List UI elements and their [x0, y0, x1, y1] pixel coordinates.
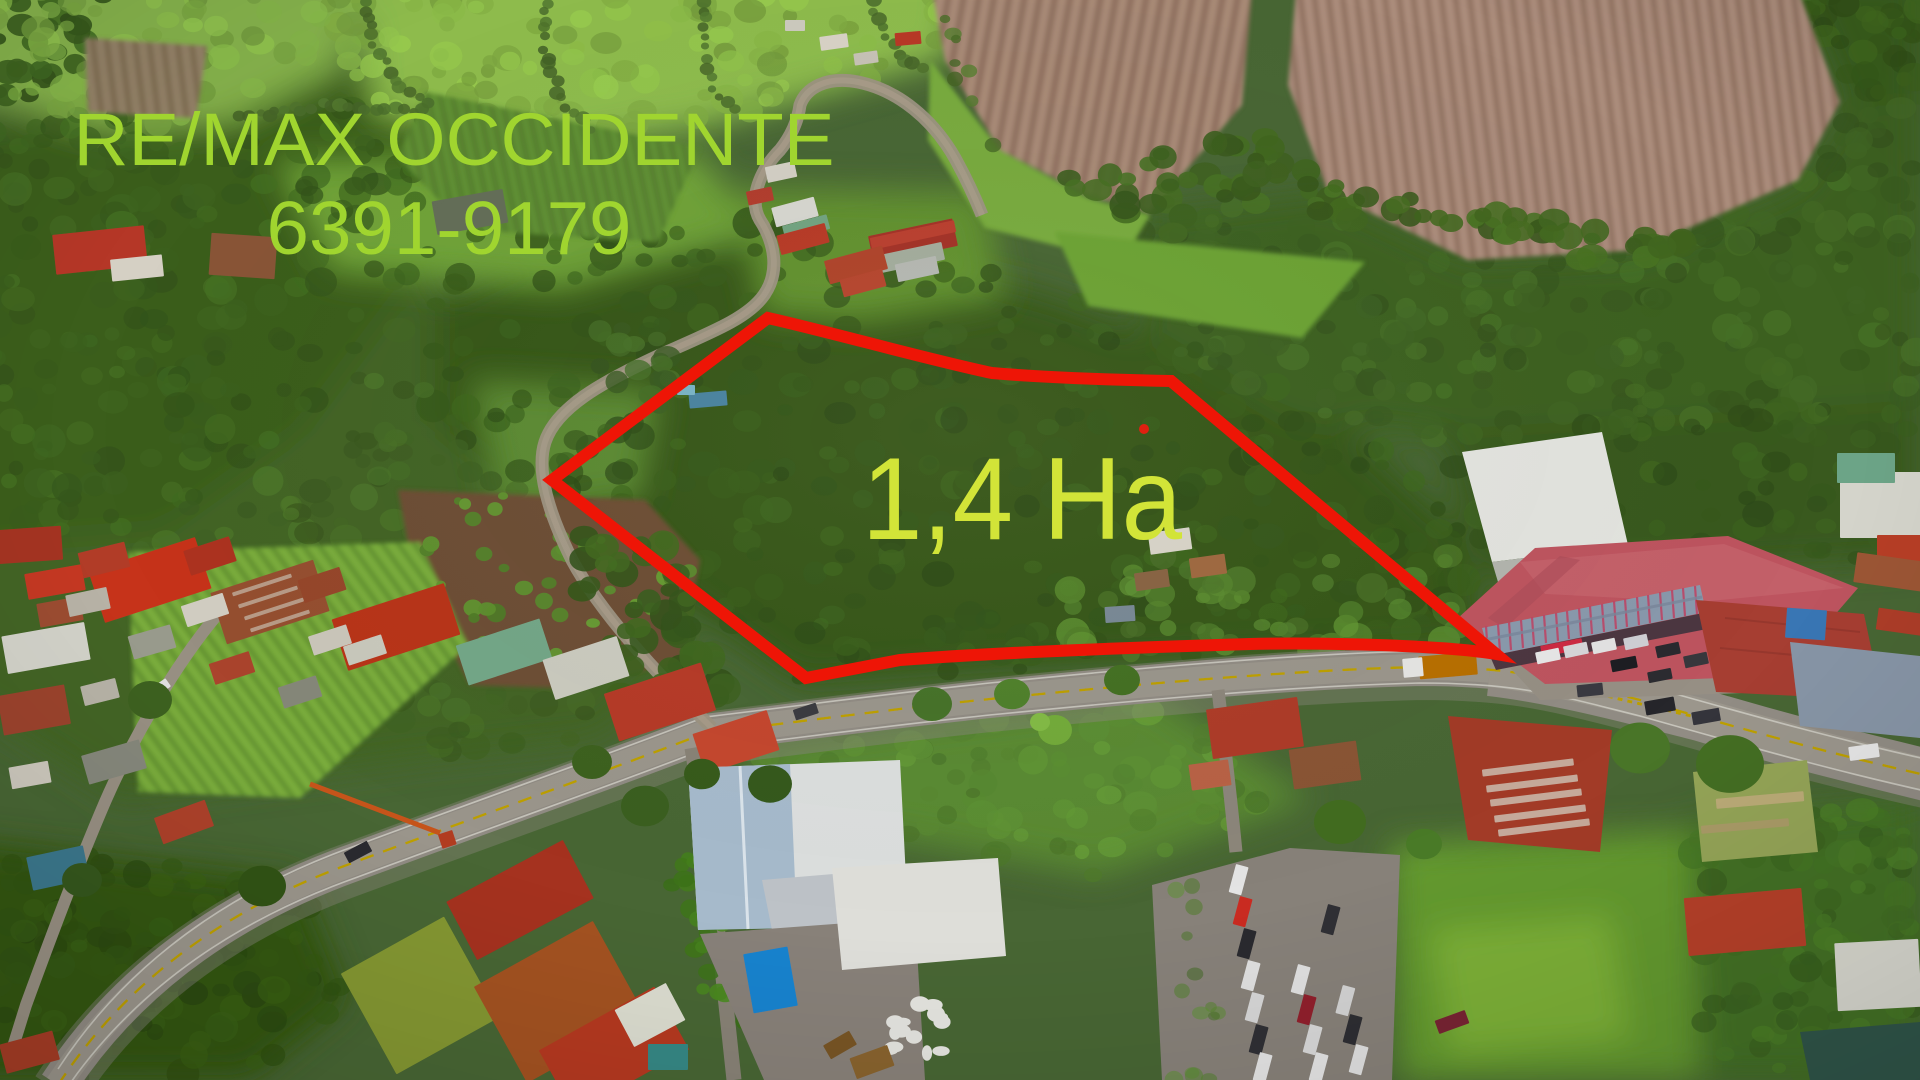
svg-text:1,4 Ha: 1,4 Ha — [862, 433, 1183, 564]
svg-text:6391-9179: 6391-9179 — [267, 186, 632, 270]
svg-text:RE/MAX OCCIDENTE: RE/MAX OCCIDENTE — [74, 98, 835, 181]
